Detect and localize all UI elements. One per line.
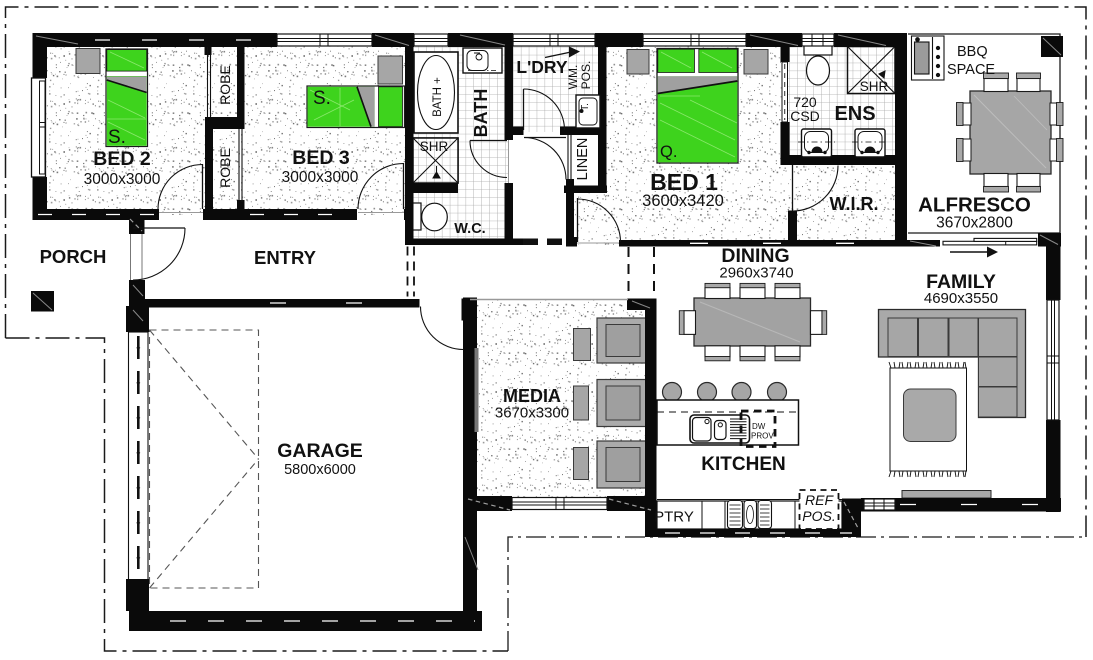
svg-text:W.I.R.: W.I.R. [830, 194, 879, 214]
svg-text:PORCH: PORCH [40, 246, 107, 267]
svg-text:3000x3000: 3000x3000 [84, 171, 161, 188]
svg-text:REF: REF [805, 492, 834, 508]
svg-text:POS.: POS. [579, 61, 593, 90]
svg-text:W.C.: W.C. [454, 221, 485, 237]
svg-text:BATH: BATH [471, 89, 491, 138]
svg-text:ENTRY: ENTRY [254, 247, 317, 268]
svg-text:BED 2: BED 2 [93, 148, 151, 170]
svg-text:S.: S. [313, 88, 331, 109]
svg-text:BBQ: BBQ [957, 44, 988, 60]
svg-text:CSD: CSD [790, 108, 820, 124]
svg-text:2960x3740: 2960x3740 [719, 265, 793, 282]
svg-text:BED 3: BED 3 [292, 147, 350, 169]
svg-text:L'DRY: L'DRY [516, 57, 567, 77]
svg-text:ROBE: ROBE [217, 148, 233, 188]
svg-text:S.: S. [108, 127, 126, 148]
svg-text:MEDIA: MEDIA [503, 386, 561, 406]
svg-text:4690x3550: 4690x3550 [924, 290, 998, 307]
svg-text:KITCHEN: KITCHEN [701, 454, 785, 475]
svg-text:SHR: SHR [420, 139, 449, 154]
svg-text:ALFRESCO: ALFRESCO [918, 194, 1031, 217]
svg-text:ROBE: ROBE [217, 65, 233, 105]
svg-text:BATH +: BATH + [432, 77, 444, 117]
svg-text:DW: DW [752, 422, 766, 431]
svg-text:WM.: WM. [566, 65, 580, 90]
svg-text:SHR: SHR [860, 79, 889, 94]
svg-text:Q.: Q. [660, 143, 677, 161]
svg-text:5800x6000: 5800x6000 [284, 462, 356, 478]
svg-text:SPACE: SPACE [947, 62, 995, 78]
svg-text:PROV: PROV [751, 432, 774, 441]
svg-text:POS.: POS. [802, 508, 835, 524]
svg-text:GARAGE: GARAGE [277, 440, 363, 462]
svg-text:PTRY: PTRY [654, 509, 694, 526]
svg-text:ENS: ENS [834, 103, 875, 125]
svg-text:3670x3300: 3670x3300 [495, 405, 569, 422]
svg-text:3670x2800: 3670x2800 [936, 215, 1013, 232]
svg-text:LINEN: LINEN [575, 138, 591, 181]
svg-text:3600x3420: 3600x3420 [642, 192, 724, 210]
svg-text:T.: T. [580, 103, 591, 111]
svg-text:3000x3000: 3000x3000 [282, 169, 359, 186]
